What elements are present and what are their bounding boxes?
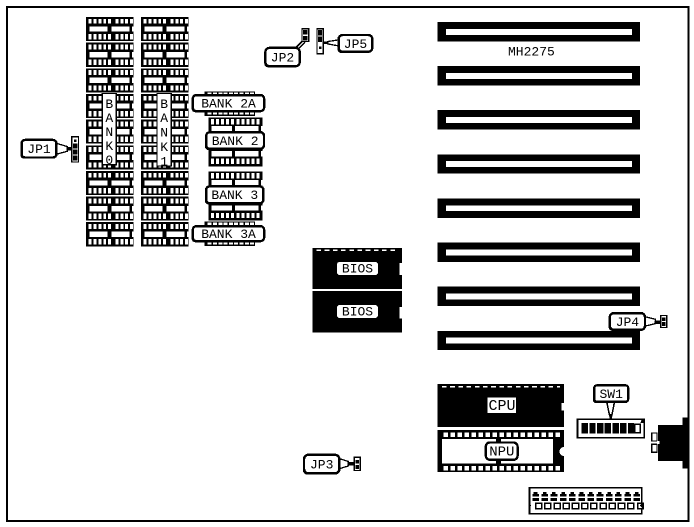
svg-text:JP5: JP5 (344, 37, 367, 52)
svg-text:BANK 3: BANK 3 (211, 188, 258, 203)
svg-text:SW1: SW1 (599, 387, 623, 402)
svg-text:0: 0 (105, 153, 113, 168)
svg-text:N: N (105, 125, 113, 140)
svg-text:JP2: JP2 (271, 51, 294, 66)
svg-text:CPU: CPU (488, 398, 515, 415)
svg-text:BANK 2: BANK 2 (212, 134, 259, 149)
svg-text:JP4: JP4 (616, 315, 640, 330)
svg-text:JP3: JP3 (310, 458, 333, 473)
svg-text:BANK 2A: BANK 2A (201, 97, 256, 112)
svg-text:B: B (160, 97, 168, 112)
svg-text:K: K (160, 140, 168, 155)
svg-text:1: 1 (160, 154, 168, 169)
svg-text:N: N (160, 126, 168, 141)
svg-text:BIOS: BIOS (342, 304, 373, 319)
svg-text:NPU: NPU (489, 445, 514, 461)
svg-text:A: A (105, 111, 113, 126)
svg-text:MH2275: MH2275 (508, 45, 555, 60)
svg-text:BIOS: BIOS (342, 261, 373, 276)
svg-text:A: A (160, 111, 168, 126)
svg-text:JP1: JP1 (27, 142, 51, 157)
svg-text:BANK 3A: BANK 3A (201, 227, 256, 242)
svg-text:B: B (105, 97, 113, 112)
svg-text:K: K (105, 139, 113, 154)
